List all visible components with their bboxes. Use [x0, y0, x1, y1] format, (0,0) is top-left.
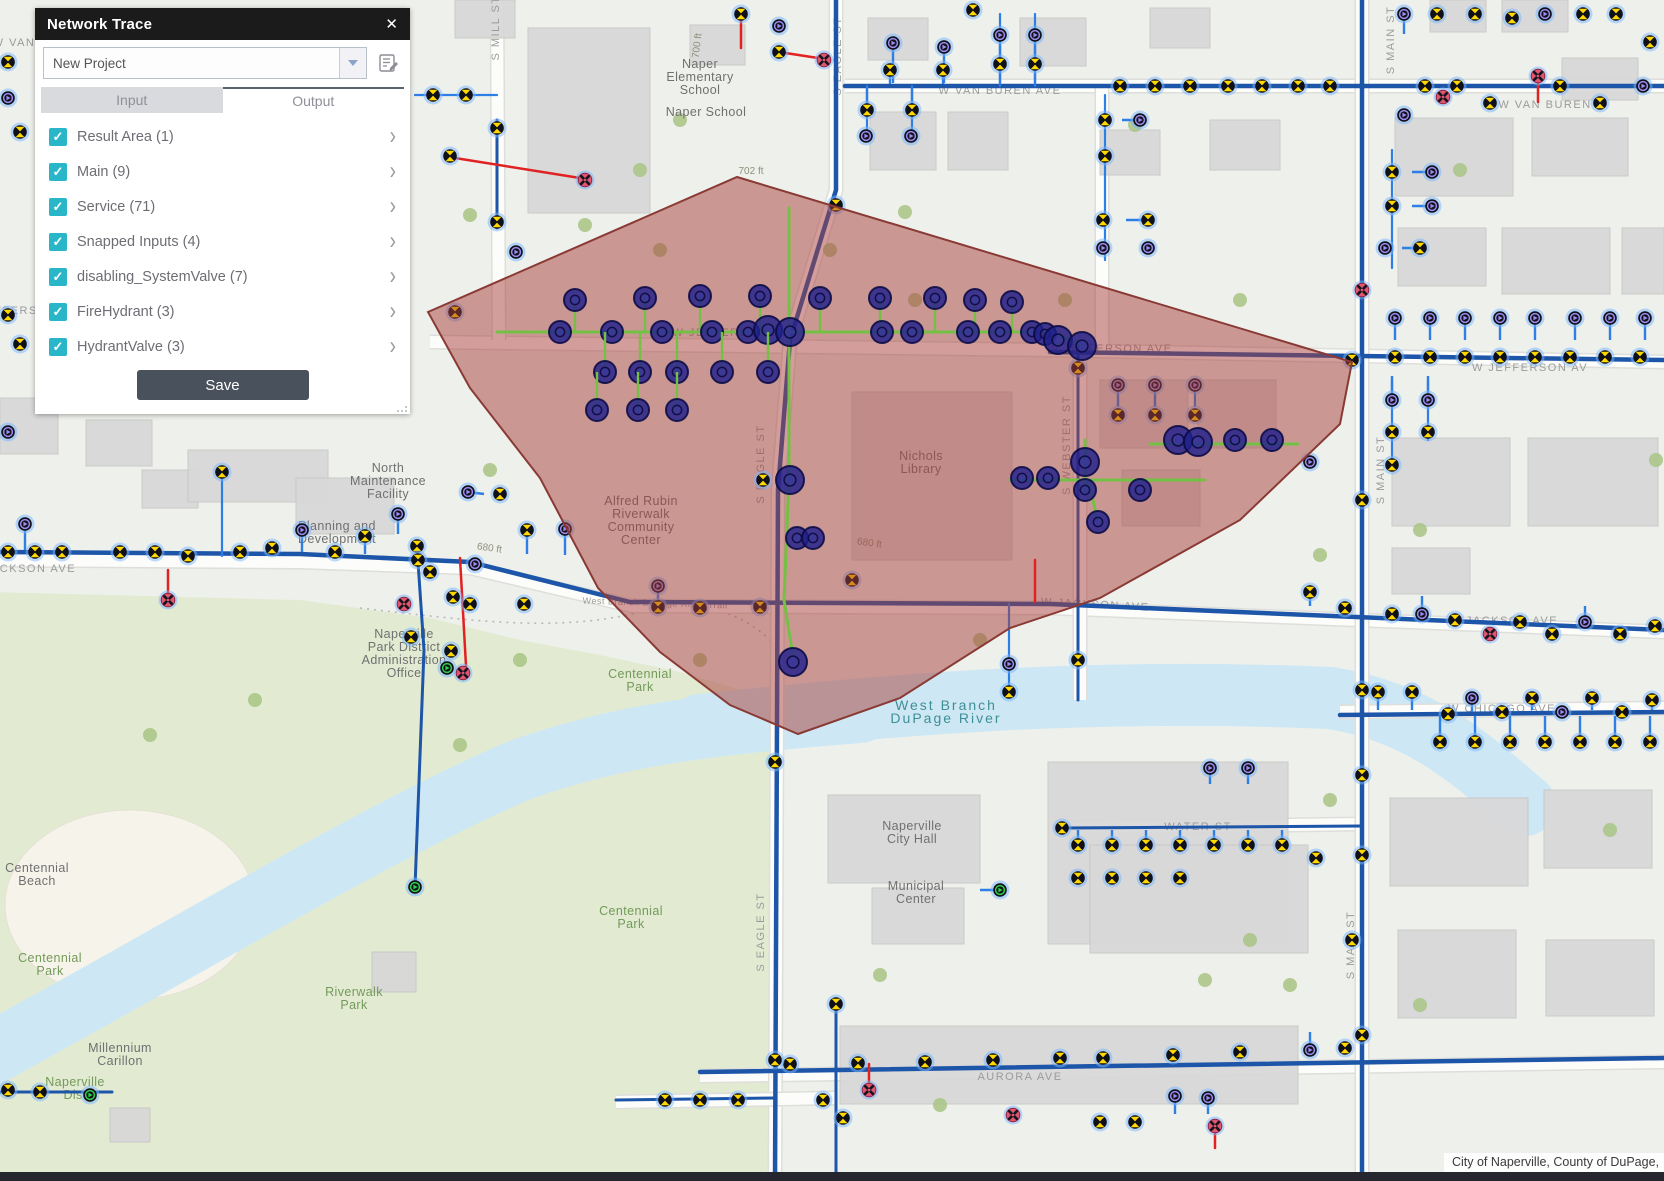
map-symbol-water-meter[interactable] [1413, 605, 1432, 624]
map-symbol-service-point[interactable] [711, 361, 733, 383]
map-label: JACKSON AVE [0, 563, 76, 575]
map-symbol-system-valve[interactable] [916, 1053, 935, 1072]
map-symbol-system-valve[interactable] [1419, 423, 1438, 442]
map-symbol-water-meter[interactable] [1166, 1087, 1185, 1106]
map-symbol-system-valve[interactable] [903, 101, 922, 120]
map-symbol-system-valve[interactable] [441, 147, 460, 166]
tree [1313, 548, 1327, 562]
map-symbol-system-valve[interactable] [1253, 77, 1272, 96]
map-symbol-system-valve[interactable] [1481, 94, 1500, 113]
checkbox-checked-icon[interactable]: ✓ [49, 268, 67, 286]
tree [1649, 453, 1663, 467]
map-attribution: City of Naperville, County of DuPage, [1444, 1153, 1664, 1172]
tree [143, 728, 157, 742]
map-symbol-water-meter[interactable] [1566, 309, 1585, 328]
map-symbol-closed-valve[interactable] [1353, 281, 1372, 300]
map-symbol-system-valve[interactable] [964, 1, 983, 20]
checkbox-checked-icon[interactable]: ✓ [49, 198, 67, 216]
map-symbol-system-valve[interactable] [1069, 869, 1088, 888]
map-symbol-system-valve[interactable] [729, 1091, 748, 1110]
tab-bar: Input Output [41, 87, 404, 113]
map-symbol-closed-valve[interactable] [159, 591, 178, 610]
map-symbol-system-valve[interactable] [1503, 9, 1522, 28]
map-symbol-water-meter[interactable] [1491, 309, 1510, 328]
map-symbol-service-point[interactable] [1001, 291, 1023, 313]
map-symbol-system-valve[interactable] [1551, 77, 1570, 96]
map-symbol-system-valve[interactable] [263, 539, 282, 558]
map-symbol-system-valve[interactable] [231, 543, 250, 562]
map-symbol-system-valve[interactable] [1611, 625, 1630, 644]
tree [1198, 973, 1212, 987]
map-symbol-system-valve[interactable] [1431, 733, 1450, 752]
layer-label: Main (9) [77, 164, 130, 180]
map-symbol-water-meter[interactable] [991, 26, 1010, 45]
map-symbol-system-valve[interactable] [421, 563, 440, 582]
map-symbol-system-valve[interactable] [1205, 836, 1224, 855]
chevron-right-icon[interactable]: › [390, 334, 396, 359]
map-symbol-water-meter[interactable] [1094, 239, 1113, 258]
building-footprint [1392, 438, 1510, 526]
map-symbol-service-point[interactable] [871, 321, 893, 343]
map-symbol-system-valve[interactable] [402, 628, 421, 647]
map-symbol-water-meter[interactable] [1199, 1089, 1218, 1108]
map-symbol-system-valve[interactable] [656, 1091, 675, 1110]
building-footprint [1395, 118, 1513, 196]
map-symbol-system-valve[interactable] [858, 101, 877, 120]
map-symbol-system-valve[interactable] [1137, 869, 1156, 888]
map-symbol-service-point[interactable] [1037, 467, 1059, 489]
map-symbol-service-point[interactable] [957, 321, 979, 343]
map-symbol-service-point-large[interactable] [1071, 448, 1099, 476]
map-symbol-system-valve[interactable] [1466, 733, 1485, 752]
map-symbol-service-point[interactable] [1129, 479, 1151, 501]
map-symbol-system-valve[interactable] [1051, 1049, 1070, 1068]
close-icon[interactable]: ✕ [385, 17, 398, 32]
chevron-right-icon[interactable]: › [390, 299, 396, 324]
map-symbol-system-valve[interactable] [1336, 1039, 1355, 1058]
resize-grip-icon[interactable] [397, 402, 407, 412]
map-symbol-system-valve[interactable] [1069, 836, 1088, 855]
map-symbol-system-valve[interactable] [1096, 147, 1115, 166]
map-symbol-system-valve[interactable] [1231, 1043, 1250, 1062]
tree [873, 968, 887, 982]
map-symbol-system-valve[interactable] [1273, 836, 1292, 855]
map-symbol-water-meter[interactable] [1419, 391, 1438, 410]
map-symbol-system-valve[interactable] [1416, 77, 1435, 96]
map-symbol-water-meter[interactable] [1383, 391, 1402, 410]
checkbox-checked-icon[interactable]: ✓ [49, 233, 67, 251]
bottom-bar [0, 1172, 1664, 1181]
building-footprint [86, 420, 152, 466]
map-symbol-service-point[interactable] [666, 399, 688, 421]
map-symbol-system-valve[interactable] [1591, 94, 1610, 113]
map-symbol-water-meter[interactable] [1000, 655, 1019, 674]
map-symbol-system-valve[interactable] [1536, 733, 1555, 752]
map-symbol-system-valve[interactable] [827, 995, 846, 1014]
chevron-right-icon[interactable]: › [390, 159, 396, 184]
map-symbol-system-valve[interactable] [1561, 348, 1580, 367]
layer-label: Snapped Inputs (4) [77, 234, 200, 250]
building-footprint [110, 1108, 150, 1142]
map-symbol-service-point[interactable] [549, 321, 571, 343]
tree [453, 738, 467, 752]
map-symbol-water-meter[interactable] [1601, 309, 1620, 328]
map-symbol-closed-valve[interactable] [395, 595, 414, 614]
map-symbol-water-meter[interactable] [1395, 106, 1414, 125]
map-symbol-system-valve[interactable] [1369, 683, 1388, 702]
map-symbol-system-valve[interactable] [984, 1051, 1003, 1070]
map-symbol-system-valve[interactable] [1523, 689, 1542, 708]
map-symbol-system-valve[interactable] [691, 1091, 710, 1110]
map-symbol-system-valve[interactable] [1383, 456, 1402, 475]
save-row: Save [35, 364, 410, 414]
map-symbol-system-valve[interactable] [111, 543, 130, 562]
map-symbol-system-valve[interactable] [1353, 1026, 1372, 1045]
save-button[interactable]: Save [137, 370, 309, 400]
map-symbol-water-meter[interactable] [1526, 309, 1545, 328]
map-symbol-system-valve[interactable] [1491, 348, 1510, 367]
checkbox-checked-icon[interactable]: ✓ [49, 303, 67, 321]
map-label: S MILL ST [490, 0, 502, 61]
map-symbol-service-point[interactable] [564, 289, 586, 311]
map-symbol-service-point-large[interactable] [779, 648, 807, 676]
map-symbol-water-meter[interactable] [1239, 759, 1258, 778]
map-symbol-water-meter[interactable] [1395, 5, 1414, 24]
map-symbol-service-point[interactable] [757, 361, 779, 383]
map-symbol-water-meter[interactable] [1536, 5, 1555, 24]
chevron-right-icon[interactable]: › [390, 124, 396, 149]
map-symbol-water-meter[interactable] [1423, 197, 1442, 216]
layer-item-disabling-systemvalve[interactable]: ✓disabling_SystemValve (7)› [35, 259, 410, 294]
panel-header: Network Trace ✕ [35, 8, 410, 40]
tree [1413, 523, 1427, 537]
map-symbol-system-valve[interactable] [1383, 423, 1402, 442]
map-symbol-system-valve[interactable] [1574, 5, 1593, 24]
map-symbol-water-meter[interactable] [16, 515, 35, 534]
map-symbol-system-valve[interactable] [488, 213, 507, 232]
layer-item-result-area[interactable]: ✓Result Area (1)› [35, 119, 410, 154]
building-footprint [1622, 228, 1664, 294]
building-footprint [1390, 798, 1528, 886]
map-symbol-system-valve[interactable] [179, 547, 198, 566]
map-symbol-closed-valve[interactable] [1434, 88, 1453, 107]
map-symbol-system-valve[interactable] [1403, 683, 1422, 702]
tree [248, 693, 262, 707]
map-symbol-system-valve[interactable] [1386, 348, 1405, 367]
map-symbol-water-meter[interactable] [1456, 309, 1475, 328]
map-symbol-system-valve[interactable] [1646, 617, 1664, 636]
map-symbol-system-valve[interactable] [1139, 211, 1158, 230]
map-symbol-system-valve[interactable] [457, 86, 476, 105]
map-symbol-system-valve[interactable] [1137, 836, 1156, 855]
map-symbol-system-valve[interactable] [1466, 5, 1485, 24]
building-footprint [1502, 228, 1610, 294]
map-symbol-system-valve[interactable] [1641, 733, 1660, 752]
map-symbol-system-valve[interactable] [732, 5, 751, 24]
tree [1603, 823, 1617, 837]
map-symbol-system-valve[interactable] [1091, 1113, 1110, 1132]
map-symbol-system-valve[interactable] [814, 1091, 833, 1110]
map-symbol-water-meter[interactable] [1423, 163, 1442, 182]
map-symbol-system-valve[interactable] [1607, 5, 1626, 24]
map-symbol-system-valve[interactable] [26, 543, 45, 562]
map-symbol-water-meter[interactable] [466, 555, 485, 574]
map-label: S EAGLE ST [755, 892, 767, 971]
map-symbol-closed-valve[interactable] [454, 664, 473, 683]
map-symbol-water-meter[interactable] [1201, 759, 1220, 778]
tree [633, 163, 647, 177]
map-symbol-system-valve[interactable] [1446, 611, 1465, 630]
map-symbol-system-valve[interactable] [1353, 491, 1372, 510]
map-symbol-service-point[interactable] [634, 287, 656, 309]
map-symbol-system-valve[interactable] [849, 1054, 868, 1073]
map-symbol-system-valve[interactable] [1353, 766, 1372, 785]
map-symbol-service-point[interactable] [901, 321, 923, 343]
network-trace-panel: Network Trace ✕ New Project Input Output [35, 8, 410, 414]
map-symbol-water-meter[interactable] [507, 243, 526, 262]
map-symbol-water-meter[interactable] [1634, 77, 1653, 96]
map-symbol-water-meter[interactable] [857, 127, 876, 146]
map-symbol-service-point[interactable] [1011, 467, 1033, 489]
map-symbol-closed-valve[interactable] [860, 1081, 879, 1100]
map-symbol-water-meter[interactable] [902, 127, 921, 146]
map-symbol-system-valve[interactable] [1239, 836, 1258, 855]
map-symbol-water-meter[interactable] [1301, 1041, 1320, 1060]
network-trace-app: W VAN BUREN AVEW VAN BURENW VANFFERSS MI… [0, 0, 1664, 1181]
map-symbol-system-valve[interactable] [11, 335, 30, 354]
map-label: Naper School [666, 105, 747, 119]
map-symbol-closed-valve[interactable] [815, 51, 834, 70]
map-symbol-system-valve[interactable] [770, 43, 789, 62]
map-symbol-system-valve[interactable] [1289, 77, 1308, 96]
map-symbol-system-valve[interactable] [1428, 5, 1447, 24]
map-symbol-service-point[interactable] [1087, 511, 1109, 533]
map-symbol-system-valve[interactable] [444, 588, 463, 607]
map-symbol-system-valve[interactable] [1421, 348, 1440, 367]
map-symbol-system-valve[interactable] [11, 123, 30, 142]
map-symbol-water-meter[interactable] [935, 38, 954, 57]
map-symbol-system-valve[interactable] [1164, 1046, 1183, 1065]
map-symbol-system-valve[interactable] [1456, 348, 1475, 367]
map-symbol-system-valve[interactable] [1493, 703, 1512, 722]
map-symbol-system-valve[interactable] [1307, 849, 1326, 868]
map-symbol-closed-valve[interactable] [1481, 625, 1500, 644]
map-symbol-system-valve[interactable] [53, 543, 72, 562]
map-symbol-system-valve[interactable] [1026, 55, 1045, 74]
map-symbol-water-meter[interactable] [1139, 239, 1158, 258]
map-symbol-water-meter[interactable] [389, 505, 408, 524]
map-symbol-system-valve[interactable] [1301, 583, 1320, 602]
map-symbol-water-meter[interactable] [1421, 309, 1440, 328]
map-symbol-system-valve[interactable] [1383, 197, 1402, 216]
map-symbol-system-valve[interactable] [326, 543, 345, 562]
map-symbol-service-point-large[interactable] [1184, 428, 1212, 456]
map-symbol-system-valve[interactable] [518, 521, 537, 540]
map-symbol-system-valve[interactable] [213, 463, 232, 482]
map-symbol-service-point[interactable] [869, 287, 891, 309]
tree [1283, 978, 1297, 992]
map-symbol-water-meter[interactable] [884, 34, 903, 53]
map-symbol-system-valve[interactable] [1103, 869, 1122, 888]
map-symbol-system-valve[interactable] [424, 86, 443, 105]
map-symbol-water-meter-green[interactable] [991, 881, 1010, 900]
map-symbol-system-valve[interactable] [1511, 613, 1530, 632]
map-symbol-system-valve[interactable] [934, 61, 953, 80]
map-symbol-service-point[interactable] [809, 287, 831, 309]
tab-input[interactable]: Input [41, 87, 223, 113]
map-symbol-water-meter[interactable] [1553, 703, 1572, 722]
map-symbol-system-valve[interactable] [1411, 239, 1430, 258]
dropdown-arrow-icon[interactable] [339, 48, 366, 78]
map-symbol-system-valve[interactable] [1146, 77, 1165, 96]
map-symbol-service-point[interactable] [627, 399, 649, 421]
map-symbol-closed-valve[interactable] [1004, 1106, 1023, 1125]
tab-output[interactable]: Output [223, 87, 405, 113]
map-symbol-system-valve[interactable] [1439, 705, 1458, 724]
map-symbol-system-valve[interactable] [1631, 348, 1650, 367]
map-symbol-system-valve[interactable] [1526, 348, 1545, 367]
map-symbol-system-valve[interactable] [31, 1083, 50, 1102]
checkbox-checked-icon[interactable]: ✓ [49, 163, 67, 181]
map-label: 702 ft [738, 166, 763, 177]
map-symbol-system-valve[interactable] [461, 595, 480, 614]
checkbox-checked-icon[interactable]: ✓ [49, 128, 67, 146]
chevron-right-icon[interactable]: › [390, 229, 396, 254]
map-symbol-water-meter[interactable] [1463, 689, 1482, 708]
layer-item-hydrantvalve[interactable]: ✓HydrantValve (3)› [35, 329, 410, 364]
project-select[interactable]: New Project [43, 47, 367, 79]
map-symbol-system-valve[interactable] [1353, 681, 1372, 700]
map-symbol-system-valve[interactable] [1383, 163, 1402, 182]
layer-item-snapped-inputs[interactable]: ✓Snapped Inputs (4)› [35, 224, 410, 259]
map-symbol-service-point[interactable] [651, 321, 673, 343]
map-symbol-water-meter[interactable] [1376, 239, 1395, 258]
result-layer-list: ✓Result Area (1)›✓Main (9)›✓Service (71)… [35, 113, 410, 364]
map-symbol-closed-valve[interactable] [1529, 67, 1548, 86]
map-symbol-service-point[interactable] [802, 527, 824, 549]
map-symbol-service-point[interactable] [689, 285, 711, 307]
map-symbol-system-valve[interactable] [1219, 77, 1238, 96]
tree [578, 218, 592, 232]
map-symbol-system-valve[interactable] [1353, 846, 1372, 865]
map-symbol-system-valve[interactable] [991, 55, 1010, 74]
map-symbol-system-valve[interactable] [1321, 77, 1340, 96]
building-footprint [1528, 438, 1658, 526]
map-symbol-system-valve[interactable] [1171, 836, 1190, 855]
map-symbol-system-valve[interactable] [1641, 33, 1660, 52]
map-symbol-service-point[interactable] [586, 399, 608, 421]
map-symbol-system-valve[interactable] [1171, 869, 1190, 888]
map-symbol-water-meter[interactable] [1386, 309, 1405, 328]
building-footprint [1210, 120, 1280, 170]
map-symbol-system-valve[interactable] [766, 753, 785, 772]
map-symbol-water-meter-green[interactable] [81, 1086, 100, 1105]
tree [463, 208, 477, 222]
map-symbol-system-valve[interactable] [1053, 819, 1072, 838]
map-symbol-system-valve[interactable] [834, 1109, 853, 1128]
map-symbol-service-point-large[interactable] [776, 318, 804, 346]
map-symbol-system-valve[interactable] [491, 485, 510, 504]
map-symbol-service-point[interactable] [1074, 479, 1096, 501]
map-symbol-system-valve[interactable] [146, 543, 165, 562]
map-symbol-system-valve[interactable] [766, 1051, 785, 1070]
tree [1233, 293, 1247, 307]
map-label: MunicipalCenter [888, 879, 944, 906]
map-symbol-system-valve[interactable] [1583, 689, 1602, 708]
map-symbol-system-valve[interactable] [1336, 599, 1355, 618]
map-symbol-water-meter[interactable] [293, 521, 312, 540]
map-symbol-system-valve[interactable] [1069, 651, 1088, 670]
map-symbol-closed-valve[interactable] [576, 171, 595, 190]
map-symbol-closed-valve[interactable] [1206, 1117, 1225, 1136]
chevron-right-icon[interactable]: › [390, 194, 396, 219]
map-symbol-system-valve[interactable] [1181, 77, 1200, 96]
layer-item-service[interactable]: ✓Service (71)› [35, 189, 410, 224]
map-symbol-water-meter[interactable] [770, 17, 789, 36]
tree [1323, 793, 1337, 807]
map-symbol-system-valve[interactable] [1111, 77, 1130, 96]
map-symbol-service-point[interactable] [749, 285, 771, 307]
map-symbol-service-point[interactable] [701, 321, 723, 343]
checkbox-checked-icon[interactable]: ✓ [49, 338, 67, 356]
map-symbol-water-meter-green[interactable] [406, 878, 425, 897]
chevron-right-icon[interactable]: › [390, 264, 396, 289]
map-symbol-system-valve[interactable] [754, 471, 773, 490]
map-symbol-system-valve[interactable] [1000, 683, 1019, 702]
layer-item-main[interactable]: ✓Main (9)› [35, 154, 410, 189]
map-symbol-system-valve[interactable] [1596, 348, 1615, 367]
map-symbol-system-valve[interactable] [1126, 1113, 1145, 1132]
map-symbol-system-valve[interactable] [1606, 733, 1625, 752]
map-symbol-service-point[interactable] [964, 289, 986, 311]
map-symbol-system-valve[interactable] [1571, 733, 1590, 752]
map-symbol-service-point-large[interactable] [1068, 332, 1096, 360]
map-label: AURORA AVE [977, 1071, 1062, 1083]
map-symbol-service-point[interactable] [629, 361, 651, 383]
map-symbol-service-point[interactable] [989, 321, 1011, 343]
panel-title: Network Trace [47, 16, 152, 33]
map-symbol-service-point[interactable] [1224, 429, 1246, 451]
map-symbol-system-valve[interactable] [881, 61, 900, 80]
map-symbol-water-meter[interactable] [1576, 613, 1595, 632]
edit-list-icon[interactable] [374, 49, 402, 77]
map-symbol-system-valve[interactable] [442, 642, 461, 661]
map-symbol-system-valve[interactable] [1094, 1049, 1113, 1068]
map-symbol-system-valve[interactable] [1096, 111, 1115, 130]
map-symbol-service-point[interactable] [924, 287, 946, 309]
layer-label: HydrantValve (3) [77, 339, 185, 355]
map-symbol-system-valve[interactable] [1501, 733, 1520, 752]
map-symbol-water-meter[interactable] [1026, 26, 1045, 45]
building-footprint [1532, 118, 1628, 176]
map-symbol-water-meter[interactable] [459, 483, 478, 502]
map-symbol-water-meter[interactable] [1636, 309, 1655, 328]
map-symbol-service-point[interactable] [1261, 429, 1283, 451]
map-symbol-system-valve[interactable] [1543, 625, 1562, 644]
layer-item-firehydrant[interactable]: ✓FireHydrant (3)› [35, 294, 410, 329]
map-symbol-system-valve[interactable] [1343, 931, 1362, 950]
map-symbol-water-meter[interactable] [1131, 111, 1150, 130]
map-symbol-service-point-large[interactable] [776, 466, 804, 494]
map-symbol-system-valve[interactable] [1103, 836, 1122, 855]
map-symbol-system-valve[interactable] [1383, 605, 1402, 624]
map-symbol-system-valve[interactable] [488, 119, 507, 138]
map-symbol-system-valve[interactable] [356, 527, 375, 546]
tree [1243, 933, 1257, 947]
map-symbol-system-valve[interactable] [1643, 691, 1662, 710]
map-symbol-system-valve[interactable] [515, 595, 534, 614]
map-symbol-system-valve[interactable] [1094, 211, 1113, 230]
